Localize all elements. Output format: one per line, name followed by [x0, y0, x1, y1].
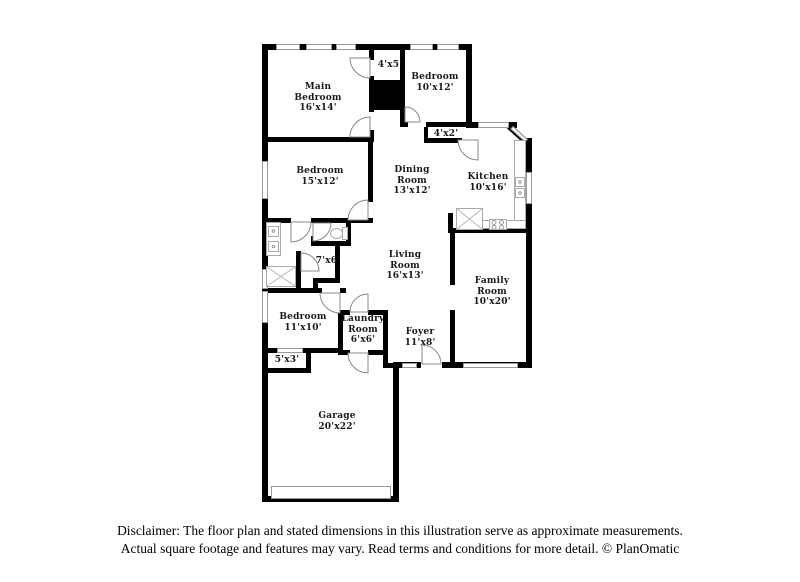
room-label-bathroom-7x6: 7'x6' — [310, 256, 346, 267]
disclaimer-line-2: Actual square footage and features may v… — [0, 540, 800, 558]
room-label-closet-5x3: 5'x3' — [269, 355, 305, 366]
room-label-closet-4x2: 4'x2' — [432, 129, 460, 140]
room-label-main-bedroom: Main Bedroom 16'x14' — [268, 82, 368, 114]
room-label-kitchen: Kitchen 10'x16' — [458, 172, 518, 193]
disclaimer-text: Disclaimer: The floor plan and stated di… — [0, 522, 800, 558]
room-label-closet-4x5: 4'x5' — [376, 60, 404, 71]
floor-plan-page: Main Bedroom 16'x14'4'x5'Bedroom 10'x12'… — [0, 0, 800, 582]
disclaimer-line-1: Disclaimer: The floor plan and stated di… — [0, 522, 800, 540]
room-labels-layer: Main Bedroom 16'x14'4'x5'Bedroom 10'x12'… — [0, 0, 800, 582]
room-label-living-room: Living Room 16'x13' — [377, 250, 433, 282]
room-label-laundry-room: Laundry Room 6'x6' — [337, 314, 389, 346]
room-label-dining-room: Dining Room 13'x12' — [384, 165, 440, 197]
room-label-family-room: Family Room 10'x20' — [464, 276, 520, 308]
room-label-bedroom-10x12: Bedroom 10'x12' — [403, 72, 467, 93]
room-label-bedroom-15x12: Bedroom 15'x12' — [278, 166, 362, 187]
room-label-foyer: Foyer 11'x8' — [394, 327, 446, 348]
room-label-garage: Garage 20'x22' — [299, 411, 375, 432]
room-label-bedroom-11x10: Bedroom 11'x10' — [270, 312, 336, 333]
